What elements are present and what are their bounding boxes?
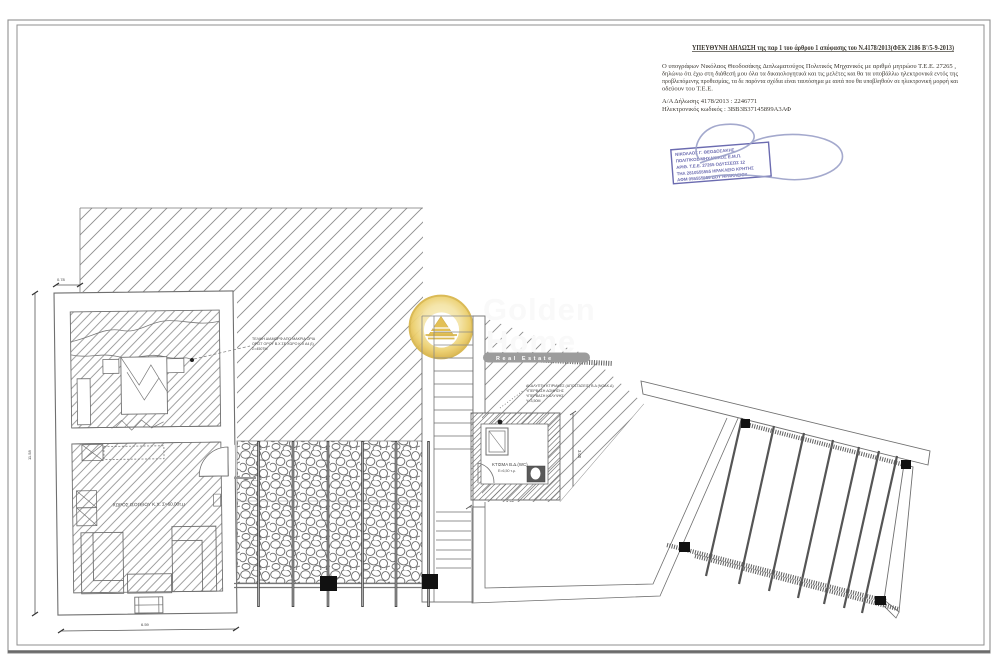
svg-text:Σ=450ΤΜ: Σ=450ΤΜ [252, 347, 268, 351]
svg-text:3.00: 3.00 [577, 450, 582, 459]
svg-text:0.78: 0.78 [57, 277, 66, 282]
svg-text:ΑΚΑΛΥΠΤΗ ΚΤΙΡΙΑΚΕΣ (ΑΠΟΣΤΑΣΕΙΣ: ΑΚΑΛΥΠΤΗ ΚΤΙΡΙΑΚΕΣ (ΑΠΟΣΤΑΣΕΙΣ) Β.Δ (ΝΟΑ… [526, 384, 614, 388]
svg-text:6.59: 6.59 [141, 622, 150, 627]
svg-text:ΥΠΕΥΘΥΝΗ ΔΗΛΩΣΗ της παρ 1 του: ΥΠΕΥΘΥΝΗ ΔΗΛΩΣΗ της παρ 1 του άρθρου 1 α… [692, 44, 955, 52]
svg-text:ΥΠΕΡΒΑΣΗ ΚΑΛΥΨΗΣ: ΥΠΕΡΒΑΣΗ ΚΑΛΥΨΗΣ [526, 394, 564, 398]
svg-text:δηλώνω ότι έχω στη διάθεσή μου: δηλώνω ότι έχω στη διάθεσή μου όλα τα δι… [662, 71, 958, 78]
svg-text:11.58: 11.58 [27, 450, 32, 460]
svg-text:Υ=3,50Μ: Υ=3,50Μ [526, 399, 540, 403]
svg-text:ΚΤΙΣΜΑ Β.Δ.(WC): ΚΤΙΣΜΑ Β.Δ.(WC) [492, 462, 528, 467]
svg-text:ΥΠΕΡΒΑΣΗ ΔΟΜΗΣΗΣ: ΥΠΕΡΒΑΣΗ ΔΟΜΗΣΗΣ [526, 389, 565, 393]
svg-text:οδεύουν του Τ.Ε.Ε.: οδεύουν του Τ.Ε.Ε. [662, 86, 713, 93]
svg-text:Ηλεκτρονικός κωδικός : 3ΒΒ3Β37: Ηλεκτρονικός κωδικός : 3ΒΒ3Β37145899Α3ΑΦ [662, 106, 791, 113]
svg-text:ΤΕΛΙΚΗ ΔΙΑΜΟΡΦ ΑΠΟ ΜΑΚΡΙΑ ΟΡΙΑ: ΤΕΛΙΚΗ ΔΙΑΜΟΡΦ ΑΠΟ ΜΑΚΡΙΑ ΟΡΙΑ [252, 337, 316, 341]
svg-text:Α/Α Δήλωσης 4178/2013 : 224677: Α/Α Δήλωσης 4178/2013 : 2246771 [662, 98, 757, 105]
svg-text:προβλεπόμενης προθεσμίας, τα δ: προβλεπόμενης προθεσμίας, τα δε παρόντα … [662, 78, 958, 85]
svg-text:Golden: Golden [483, 292, 596, 327]
svg-text:ΧΩΡΟΣ ΙΣΟΓΕΙΟΥ Κ.Χ. Σ=60,00τ: ΧΩΡΟΣ ΙΣΟΓΕΙΟΥ Κ.Χ. Σ=60,00τ.μ [113, 502, 186, 508]
svg-text:Ε=6,50 τ.μ.: Ε=6,50 τ.μ. [498, 469, 516, 473]
svg-text:ΟΡΙΣΤ ΟΡΟΥ Β.Χ ΣΕ ΧΩΡΟ Κ.Χ Α4: ΟΡΙΣΤ ΟΡΟΥ Β.Χ ΣΕ ΧΩΡΟ Κ.Χ Α4 β) [252, 342, 314, 346]
svg-text:Real Estate: Real Estate [496, 356, 554, 362]
svg-text:Ο υπογράφων Νικόλαος Θεοδοσάκη: Ο υπογράφων Νικόλαος Θεοδοσάκης Διπλωματ… [662, 63, 956, 70]
